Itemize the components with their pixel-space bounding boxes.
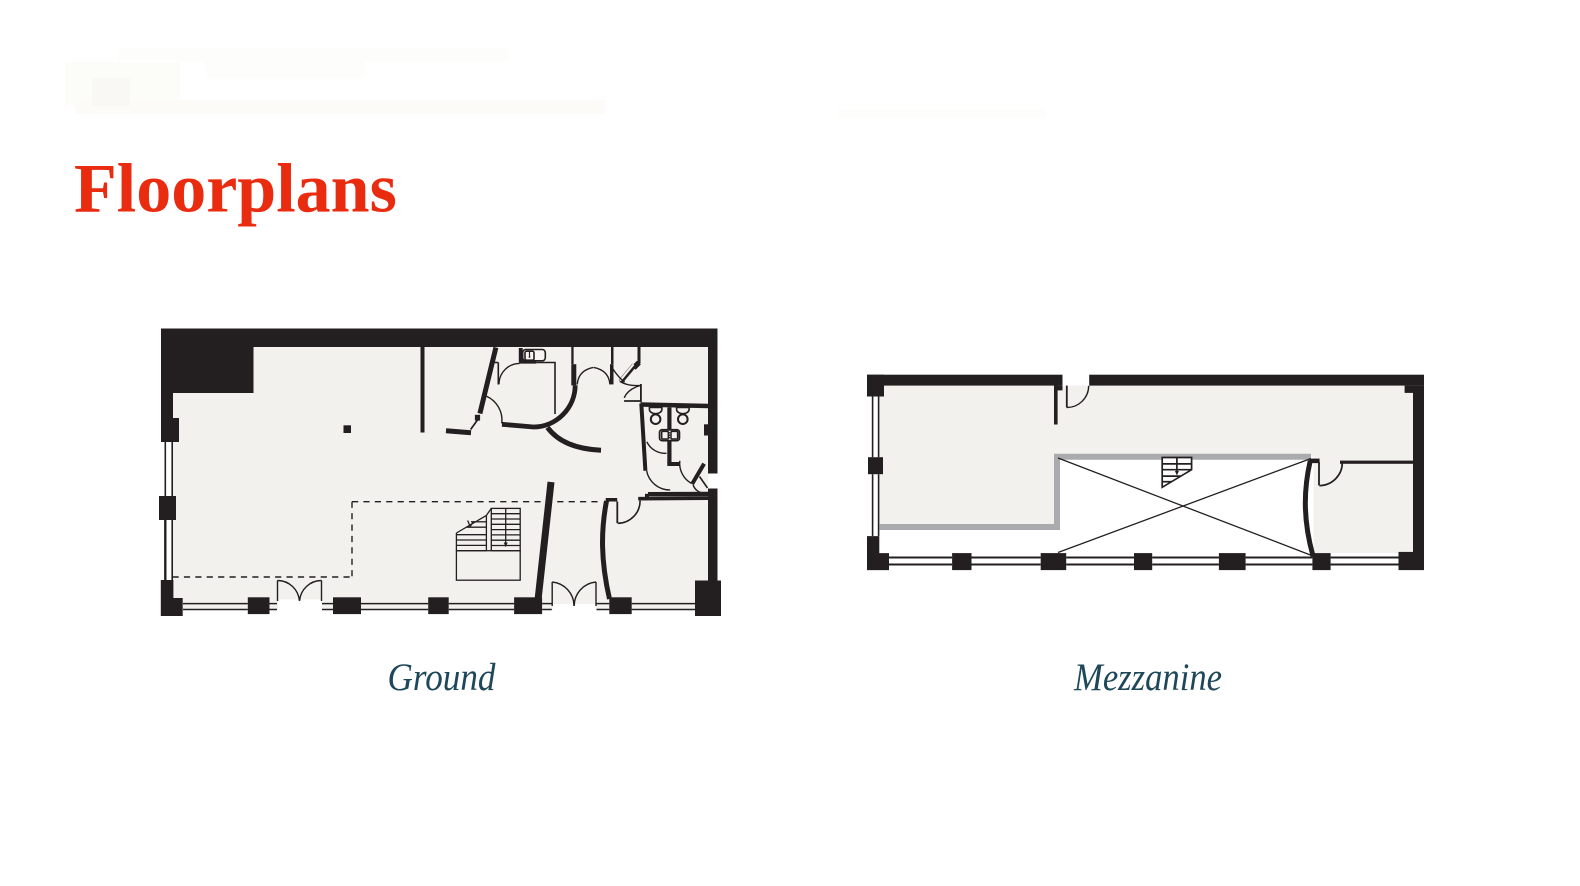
svg-text:Ground: Ground [388, 656, 496, 699]
svg-text:Mezzanine: Mezzanine [1073, 656, 1222, 699]
svg-text:Floorplans: Floorplans [74, 151, 397, 228]
